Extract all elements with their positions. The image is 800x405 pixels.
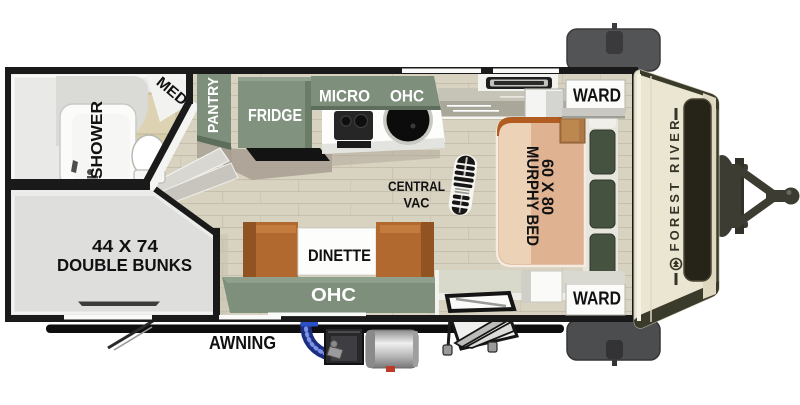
svg-text:AWNING: AWNING xyxy=(209,333,276,353)
svg-text:SHOWER: SHOWER xyxy=(89,101,106,179)
svg-text:44 X 74: 44 X 74 xyxy=(92,236,158,256)
svg-text:FRIDGE: FRIDGE xyxy=(248,105,302,125)
svg-text:CENTRAL: CENTRAL xyxy=(388,178,445,194)
svg-text:WARD: WARD xyxy=(573,289,621,309)
svg-text:OHC: OHC xyxy=(390,87,424,106)
svg-text:MICRO: MICRO xyxy=(319,87,370,106)
svg-text:OHC: OHC xyxy=(311,285,356,305)
svg-text:PANTRY: PANTRY xyxy=(205,77,222,133)
svg-text:DOUBLE BUNKS: DOUBLE BUNKS xyxy=(57,255,192,275)
svg-text:MURPHY BED: MURPHY BED xyxy=(523,146,542,246)
svg-text:DINETTE: DINETTE xyxy=(308,247,371,265)
svg-text:FOREST RIVER: FOREST RIVER xyxy=(667,120,682,252)
svg-text:WARD: WARD xyxy=(573,86,621,106)
svg-text:VAC: VAC xyxy=(404,195,430,211)
